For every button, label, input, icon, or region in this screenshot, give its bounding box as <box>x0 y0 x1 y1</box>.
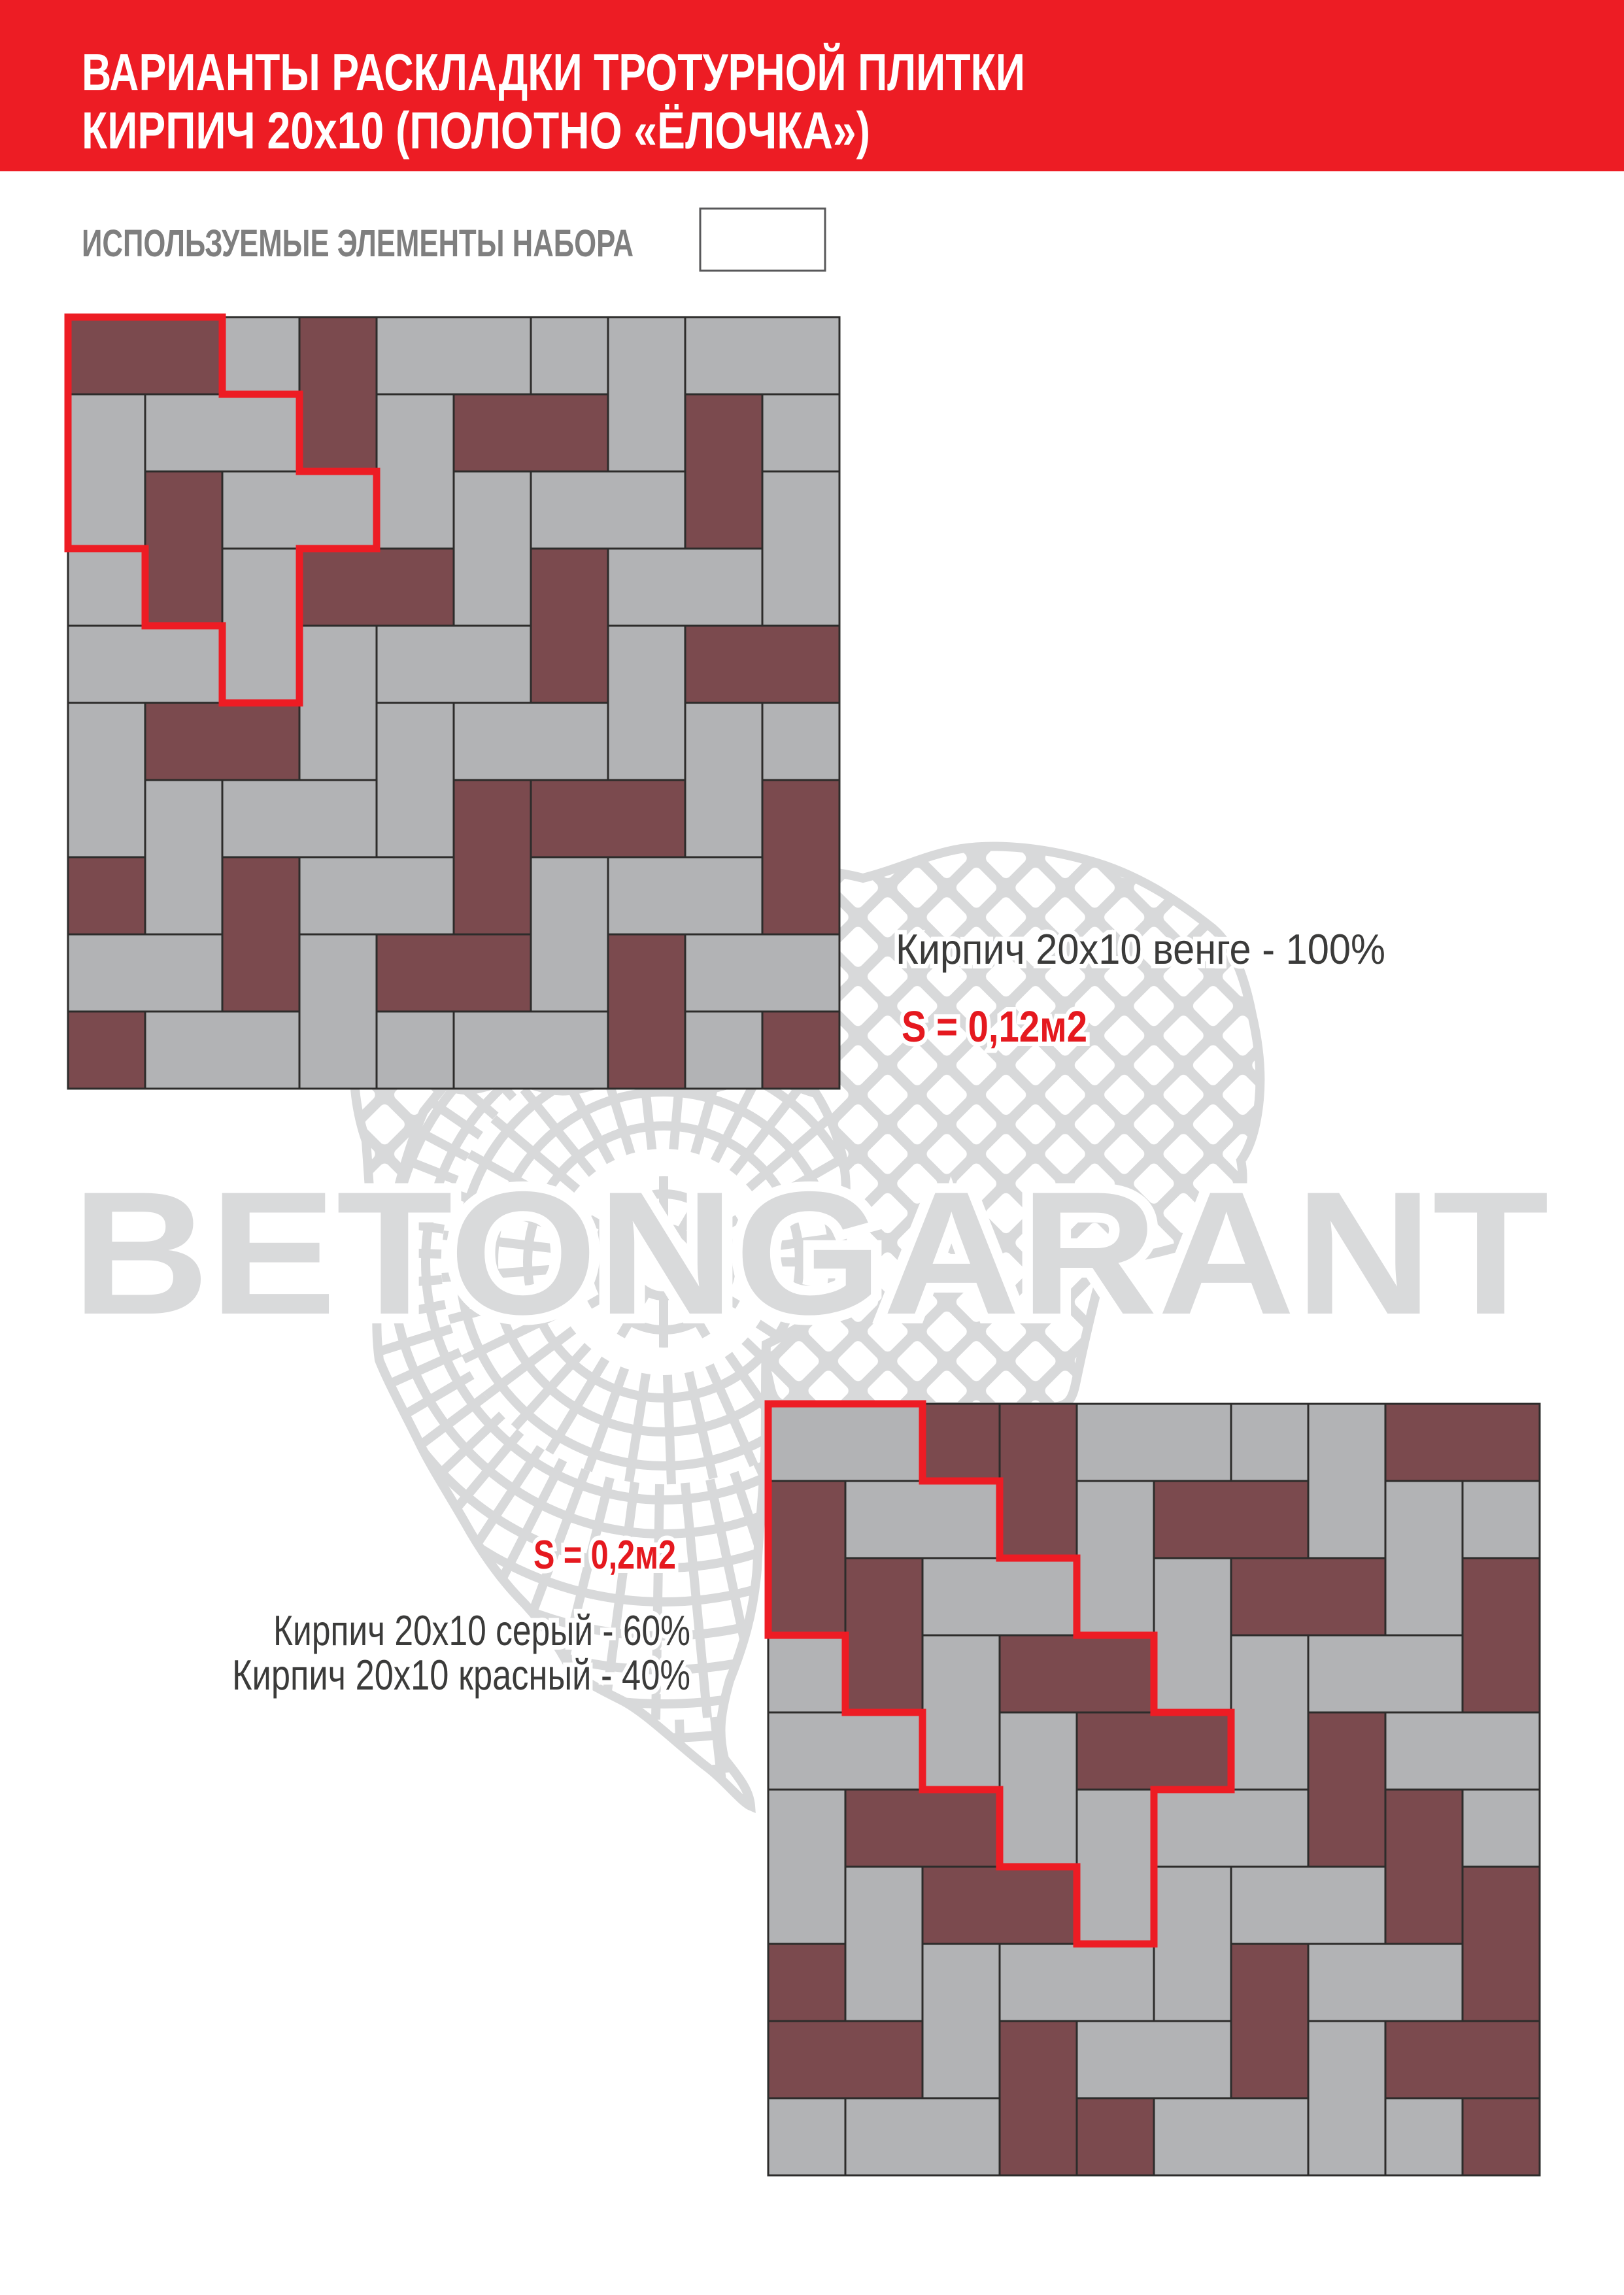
svg-text:S = 0,2м2: S = 0,2м2 <box>533 1533 676 1578</box>
svg-text:ВАРИАНТЫ РАСКЛАДКИ ТРОТУРНОЙ П: ВАРИАНТЫ РАСКЛАДКИ ТРОТУРНОЙ ПЛИТКИ <box>82 42 1025 101</box>
svg-text:ИСПОЛЬЗУЕМЫЕ ЭЛЕМЕНТЫ НАБОРА: ИСПОЛЬЗУЕМЫЕ ЭЛЕМЕНТЫ НАБОРА <box>82 222 634 265</box>
svg-text:S = 0,12м2: S = 0,12м2 <box>902 1002 1087 1051</box>
svg-text:КИРПИЧ 20х10 (ПОЛОТНО «ЁЛОЧКА»: КИРПИЧ 20х10 (ПОЛОТНО «ЁЛОЧКА») <box>82 101 870 160</box>
svg-text:Кирпич 20х10 серый - 60%: Кирпич 20х10 серый - 60% <box>273 1606 690 1654</box>
svg-text:Кирпич 20х10 венге - 100%: Кирпич 20х10 венге - 100% <box>896 925 1385 973</box>
svg-text:Кирпич 20х10 красный - 40%: Кирпич 20х10 красный - 40% <box>232 1651 690 1699</box>
svg-text:BETONGARANT: BETONGARANT <box>72 1155 1549 1351</box>
